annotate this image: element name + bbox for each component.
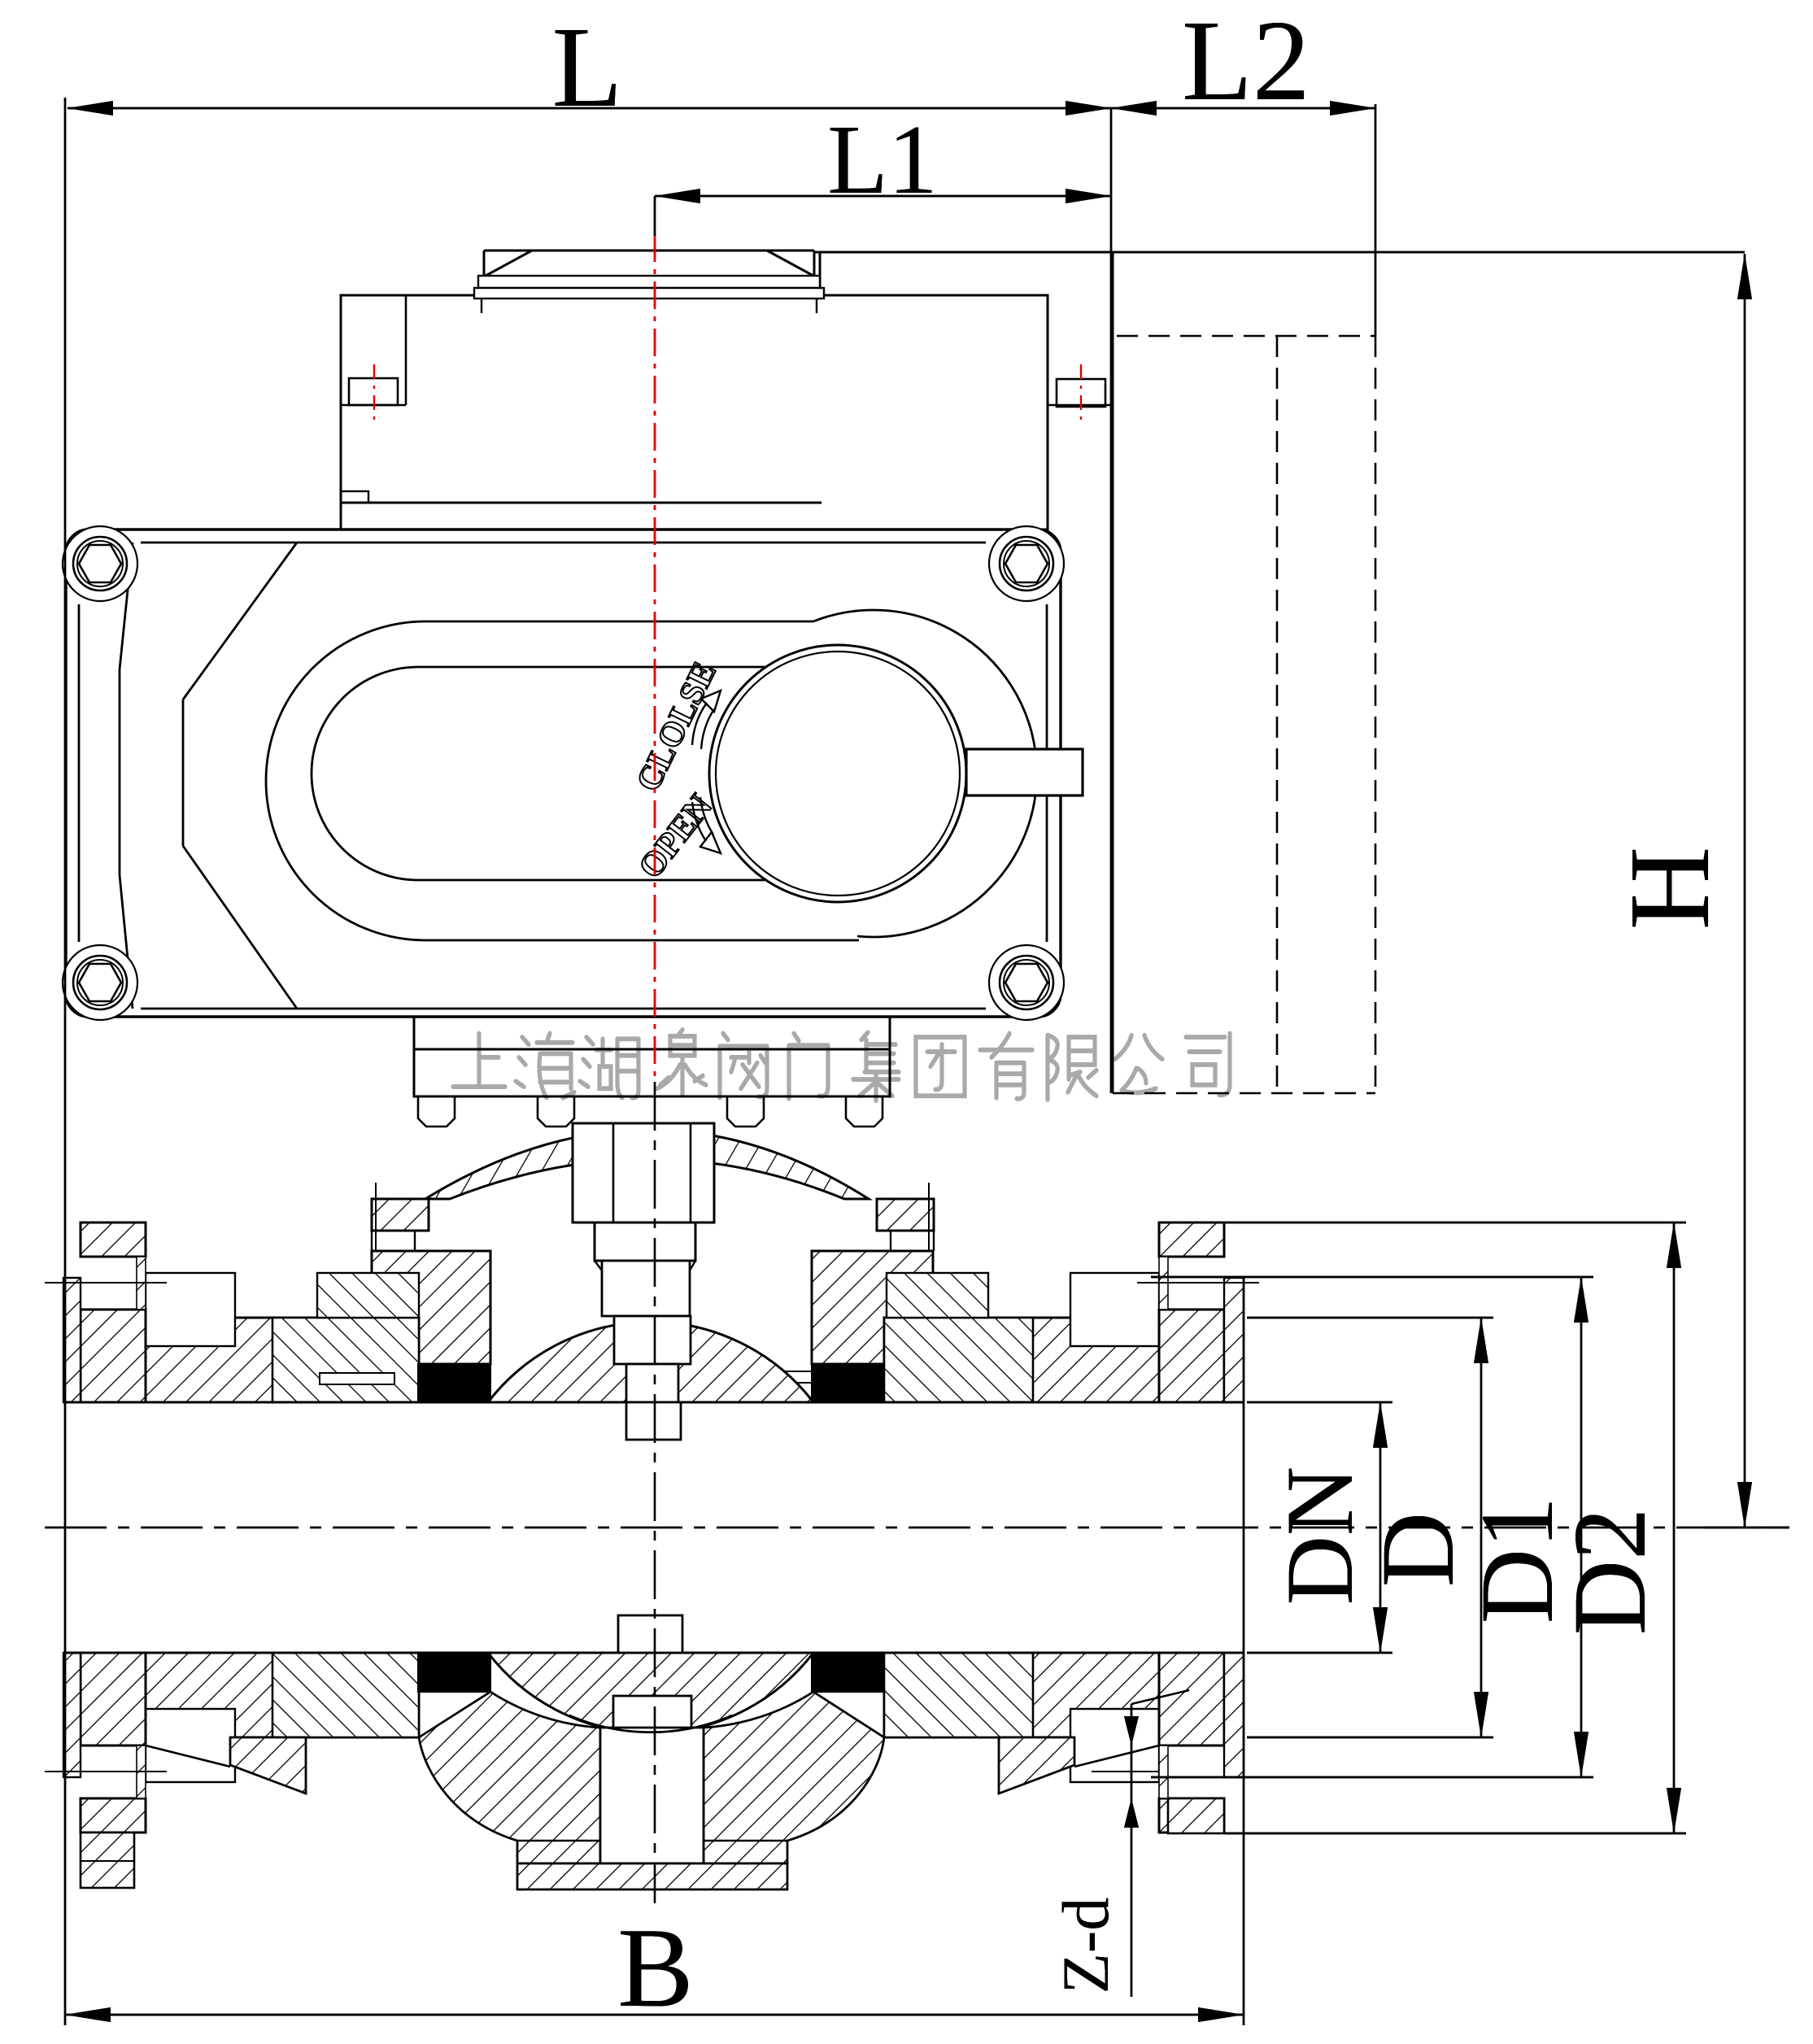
svg-text:D: D [1360, 1512, 1475, 1587]
svg-text:H: H [1605, 847, 1733, 930]
svg-text:L2: L2 [1182, 0, 1310, 124]
svg-text:L: L [552, 2, 623, 131]
svg-text:B: B [617, 1905, 693, 2031]
svg-text:L1: L1 [827, 105, 938, 215]
svg-text:Z-d: Z-d [1048, 1898, 1122, 1994]
svg-text:D2: D2 [1552, 1508, 1667, 1635]
svg-text:DN: DN [1266, 1467, 1373, 1605]
